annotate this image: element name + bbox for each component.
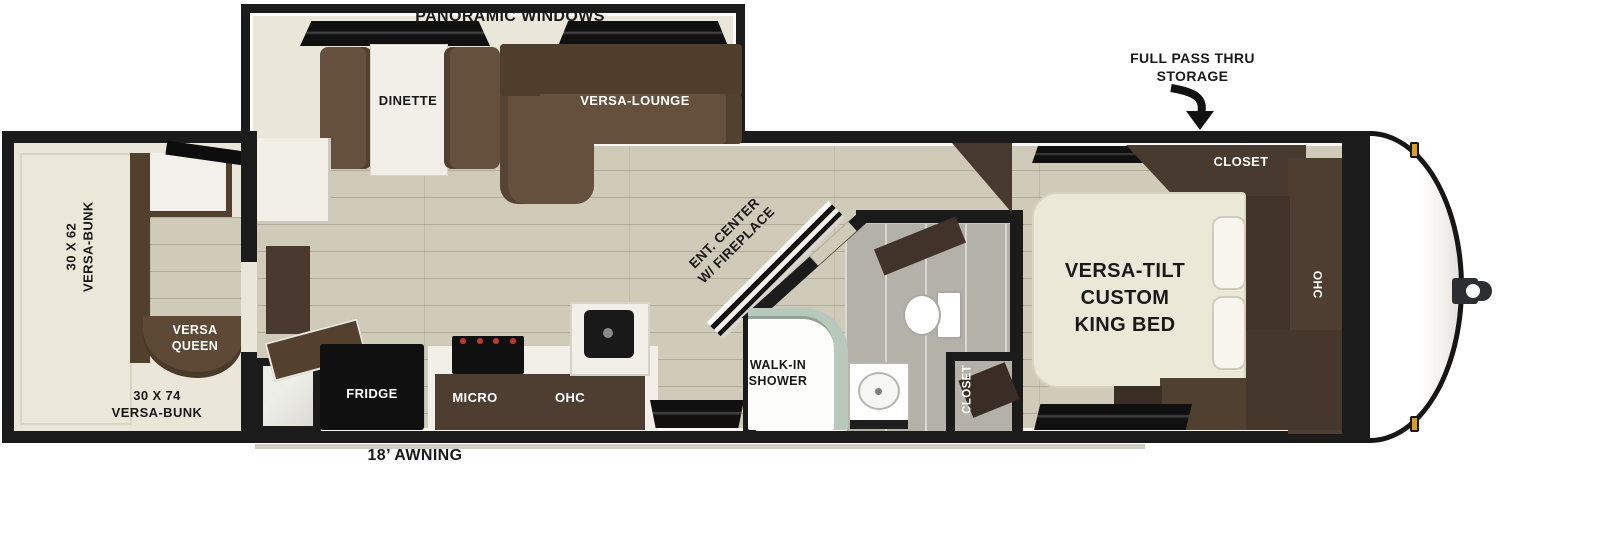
bedroom-window-bottom-icon (1034, 404, 1192, 430)
kitchen-faucet-icon (603, 328, 613, 338)
storage-arrow-icon (1155, 84, 1219, 132)
pillow-bottom (1212, 296, 1246, 370)
walk-in-shower-label: WALK-INSHOWER (728, 357, 828, 389)
bunk-room-doorway (241, 262, 257, 352)
rear-bunk-label: 30 X 74VERSA-BUNK (77, 388, 237, 421)
nose-cap (1370, 131, 1464, 443)
front-wall (1342, 131, 1372, 443)
rv-floorplan: 18’ AWNING PANORAMIC WINDOWS DINETTE VER… (0, 0, 1600, 547)
fridge-label: FRIDGE (322, 386, 422, 403)
hitch-notch-icon (1466, 284, 1480, 298)
bedroom-dresser (1246, 330, 1346, 430)
kitchen-ohc-label: OHC (540, 390, 600, 407)
bath-closet-label: CLOSET (961, 361, 976, 417)
king-bed-label: VERSA-TILTCUSTOMKING BED (1040, 258, 1210, 339)
toilet-icon (903, 294, 941, 336)
tv-panel (266, 246, 310, 334)
bath-vanity-base (850, 420, 908, 429)
versa-lounge-label: VERSA-LOUNGE (560, 93, 710, 110)
dinette-label: DINETTE (358, 93, 458, 110)
stove-burners-icon (460, 338, 516, 346)
versa-lounge-back (500, 44, 742, 96)
versa-queen-label: VERSAQUEEN (147, 322, 243, 354)
micro-label: MICRO (440, 390, 510, 407)
awning-label: 18’ AWNING (335, 446, 495, 466)
dinette-table (370, 44, 448, 176)
pillow-top (1212, 216, 1246, 290)
bedroom-closet-label: CLOSET (1196, 154, 1286, 171)
bedroom-ohc-label: OHC (1309, 259, 1324, 311)
slide-window-left-icon (300, 21, 490, 46)
left-counter (257, 138, 331, 224)
slide-window-right-icon (558, 21, 728, 46)
bunk-room-wood-patch (150, 217, 243, 325)
bath-faucet-icon (875, 388, 882, 395)
side-bunk-label: 30 X 62VERSA-BUNK (63, 187, 96, 307)
kitchen-window-icon (650, 400, 744, 428)
marker-light-bottom-icon (1410, 416, 1419, 432)
marker-light-top-icon (1410, 142, 1419, 158)
bathroom-top-wall (856, 210, 1023, 223)
storage-label: FULL PASS THRUSTORAGE (1100, 50, 1285, 86)
bunk-corner-cabinet (150, 153, 232, 217)
